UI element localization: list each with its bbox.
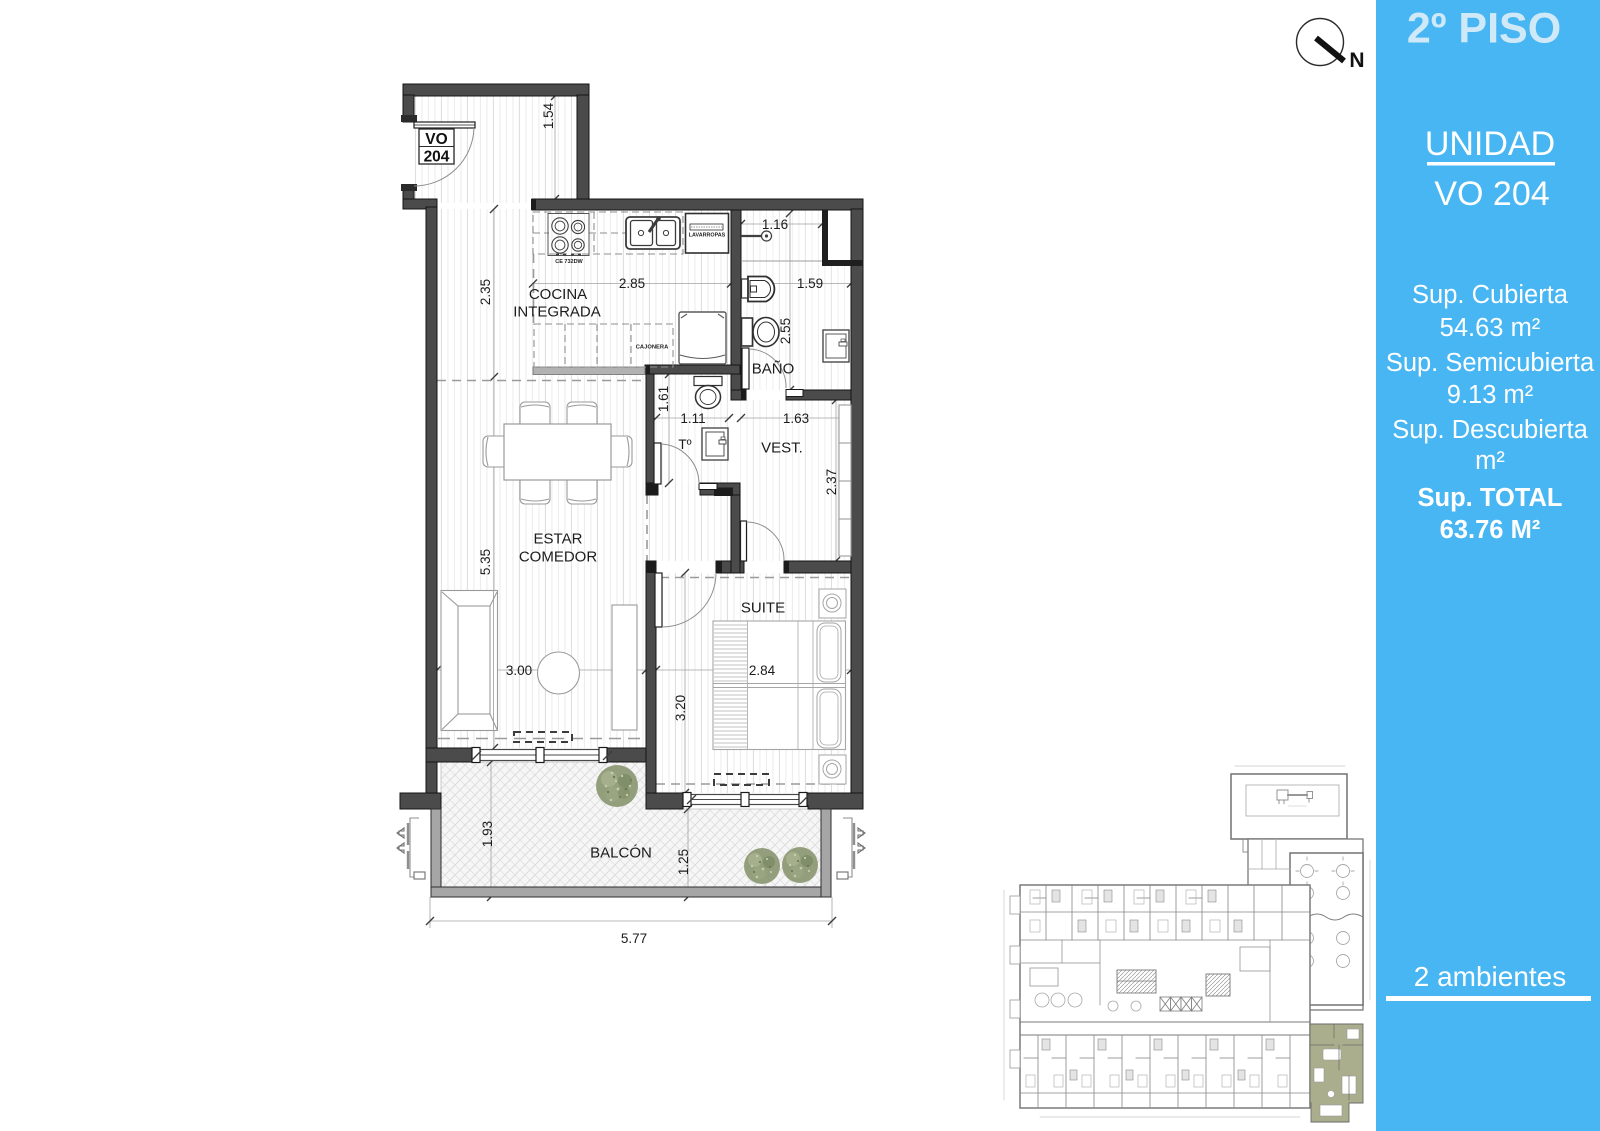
svg-text:2º PISO: 2º PISO <box>1407 5 1561 53</box>
svg-text:5.77: 5.77 <box>621 931 647 946</box>
svg-text:m²: m² <box>1475 447 1505 475</box>
svg-text:VO 204: VO 204 <box>1434 175 1549 213</box>
svg-text:1.93: 1.93 <box>480 821 495 847</box>
svg-text:1.16: 1.16 <box>762 217 788 232</box>
svg-text:UNIDAD: UNIDAD <box>1425 125 1555 163</box>
svg-text:VEST.: VEST. <box>761 440 803 457</box>
svg-text:1.59: 1.59 <box>797 276 823 291</box>
svg-text:3.20: 3.20 <box>673 695 688 721</box>
svg-text:COMEDOR: COMEDOR <box>519 549 598 566</box>
svg-text:204: 204 <box>424 149 450 166</box>
svg-text:63.76 M²: 63.76 M² <box>1440 516 1541 544</box>
svg-text:CAJONERA: CAJONERA <box>636 345 669 351</box>
svg-text:BAÑO: BAÑO <box>752 361 795 378</box>
svg-text:2.35: 2.35 <box>478 279 493 305</box>
svg-text:COCINA: COCINA <box>529 286 587 303</box>
svg-text:3.00: 3.00 <box>506 663 532 678</box>
svg-text:1.61: 1.61 <box>656 386 671 412</box>
svg-text:1.54: 1.54 <box>541 102 556 129</box>
svg-text:Tº: Tº <box>678 437 691 452</box>
svg-text:VO: VO <box>425 131 447 148</box>
svg-text:BALCÓN: BALCÓN <box>590 845 652 862</box>
svg-text:INTEGRADA: INTEGRADA <box>513 304 601 321</box>
svg-text:2.84: 2.84 <box>749 663 776 678</box>
svg-text:9.13 m²: 9.13 m² <box>1447 381 1533 409</box>
svg-text:2.55: 2.55 <box>778 318 793 344</box>
svg-text:ESTAR: ESTAR <box>534 531 583 548</box>
svg-text:1.25: 1.25 <box>676 849 691 875</box>
svg-text:Sup. Cubierta: Sup. Cubierta <box>1412 281 1569 309</box>
svg-text:2.85: 2.85 <box>619 276 645 291</box>
svg-text:2 ambientes: 2 ambientes <box>1414 961 1567 992</box>
svg-text:1.63: 1.63 <box>783 411 809 426</box>
svg-text:54.63 m²: 54.63 m² <box>1440 314 1541 342</box>
svg-text:5.35: 5.35 <box>478 549 493 575</box>
svg-text:N: N <box>1349 49 1364 72</box>
svg-text:SUITE: SUITE <box>741 600 785 617</box>
svg-text:Sup. Semicubierta: Sup. Semicubierta <box>1386 349 1595 377</box>
svg-text:CE 732DW: CE 732DW <box>555 259 583 265</box>
svg-text:Sup. Descubierta: Sup. Descubierta <box>1392 416 1588 444</box>
svg-text:1.11: 1.11 <box>680 411 705 426</box>
svg-text:2.37: 2.37 <box>824 469 839 495</box>
svg-text:LAVARROPAS: LAVARROPAS <box>689 233 726 239</box>
svg-text:Sup. TOTAL: Sup. TOTAL <box>1418 484 1563 512</box>
